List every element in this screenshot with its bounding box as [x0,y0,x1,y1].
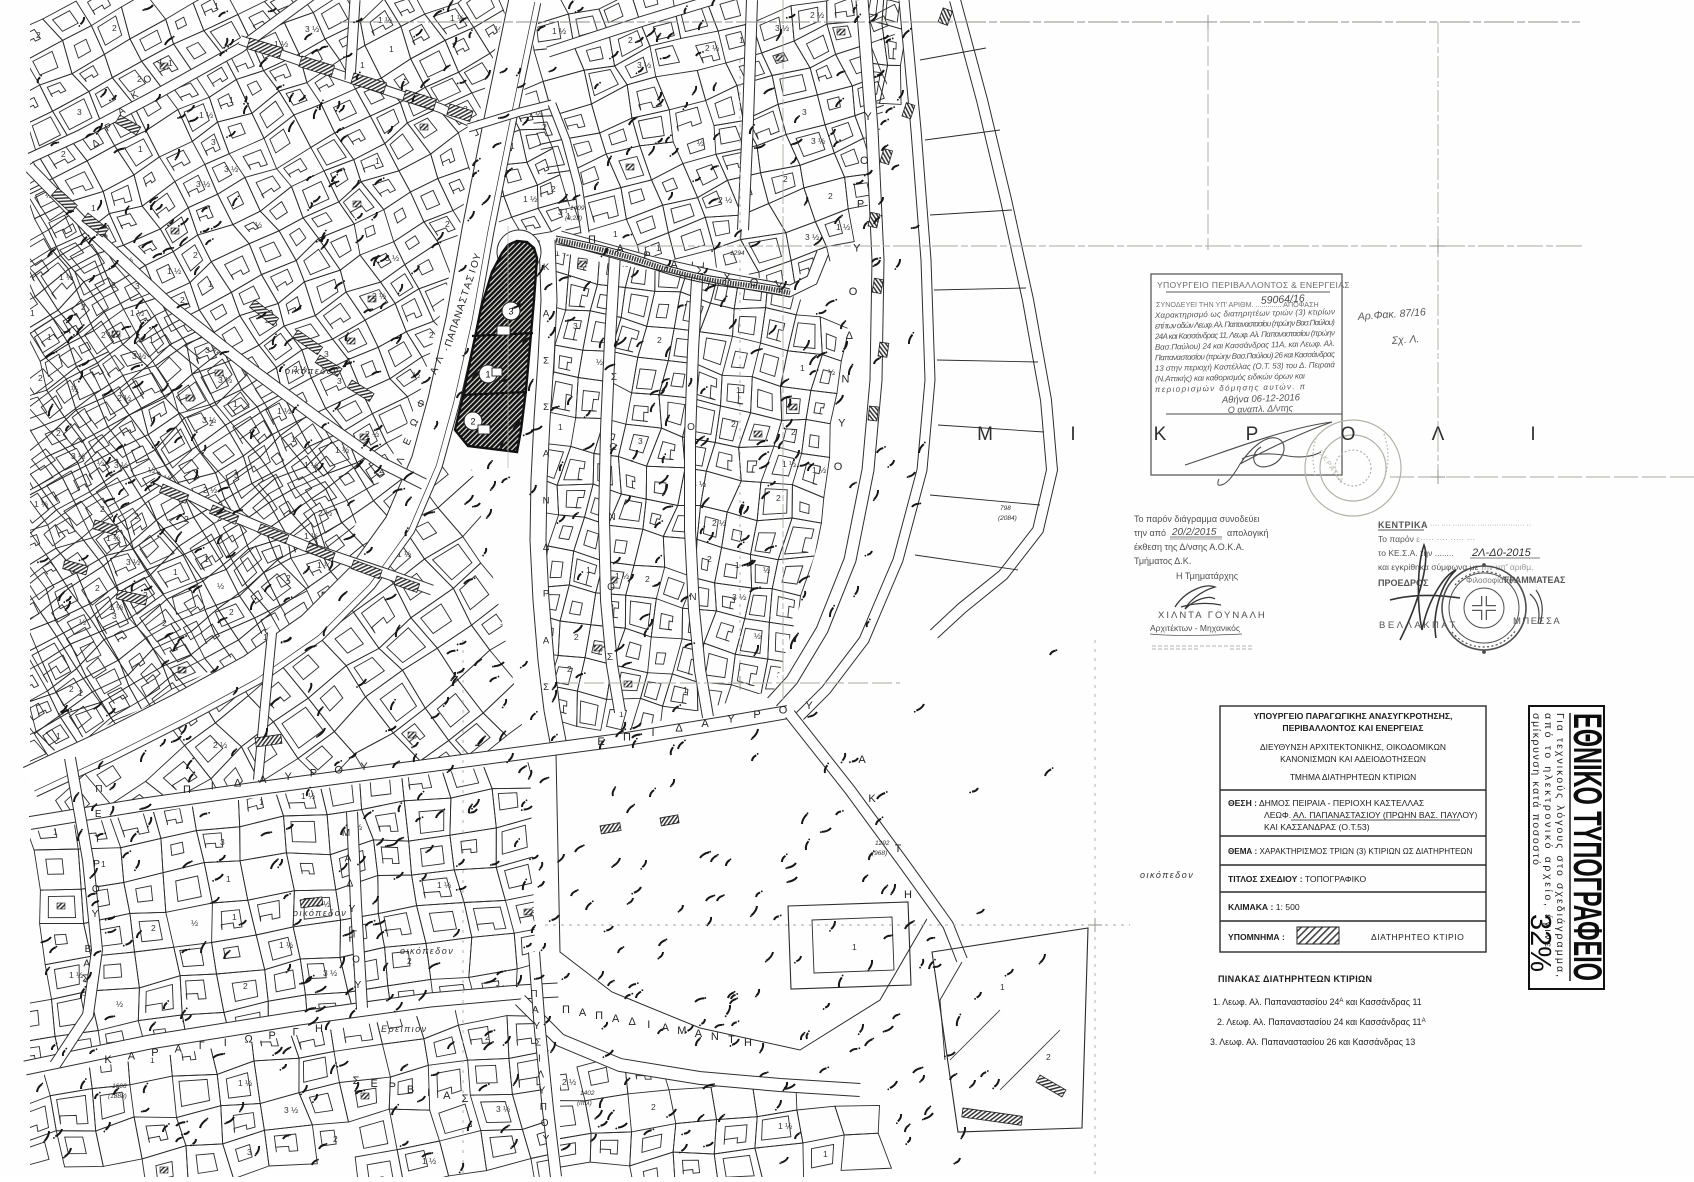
svg-text:Α: Α [532,1005,539,1016]
svg-text:1: 1 [229,95,234,105]
svg-text:1: 1 [232,912,237,922]
svg-text:3: 3 [337,376,342,386]
svg-text:1 ½: 1 ½ [130,308,144,318]
svg-text:ΧΙΛΝΤΑ ΓΟΥΝΑΛΗ: ΧΙΛΝΤΑ ΓΟΥΝΑΛΗ [1158,610,1267,621]
svg-text:Α: Α [579,1007,587,1019]
svg-text:Ρ: Ρ [643,250,650,262]
svg-text:3: 3 [112,611,117,621]
svg-text:Μ: Μ [977,424,993,445]
svg-text:(1888): (1888) [108,1093,127,1100]
svg-text:Π: Π [530,989,537,1000]
svg-text:2: 2 [651,1102,656,1112]
svg-text:½: ½ [255,220,262,230]
svg-text:Υ: Υ [355,980,362,991]
svg-text:½: ½ [754,631,761,641]
svg-text:Ο: Ο [92,884,100,895]
svg-text:έκθεση της Δ/νσης Α.Ο.Κ.: έκθεση της Δ/νσης Α.Ο.Κ.Α. [1134,542,1244,552]
svg-text:1: 1 [173,567,178,577]
svg-text:Τ: Τ [728,1034,735,1046]
svg-text:Υ: Υ [349,904,356,915]
svg-text:Ο: Ο [834,461,843,473]
svg-text:1: 1 [852,942,857,952]
svg-text:Η Τμηματάρχης: Η Τμηματάρχης [1176,571,1239,581]
svg-text:Σ: Σ [607,652,613,663]
svg-text:Υ: Υ [360,761,368,773]
svg-text:2: 2 [95,583,100,593]
svg-text:ΔΙΕΥΘΥΝΣΗ ΑΡΧΙΤΕΚΤΟΝΙΚΗΣ, ΟΙΚΟ: ΔΙΕΥΘΥΝΣΗ ΑΡΧΙΤΕΚΤΟΝΙΚΗΣ, ΟΙΚΟΔΟΜΙΚΩΝ [1260,742,1446,752]
svg-text:(2084): (2084) [998,515,1017,522]
svg-text:2: 2 [731,419,736,429]
svg-text:1 ½: 1 ½ [34,499,48,509]
svg-text:Ι: Ι [538,1053,541,1064]
svg-text:Π: Π [562,1004,570,1016]
svg-text:Ν: Ν [543,495,550,506]
svg-text:Α: Α [858,754,866,766]
svg-text:2: 2 [1046,1052,1051,1062]
svg-text:1: 1 [823,1149,828,1159]
svg-text:Δ: Δ [234,777,242,789]
svg-text:2: 2 [209,418,214,428]
svg-text:1: 1 [739,35,744,45]
svg-text:½: ½ [217,581,224,591]
svg-text:Τ: Τ [351,929,357,940]
svg-text:Ο: Ο [1341,424,1356,445]
svg-text:Σχ. Λ.: Σχ. Λ. [1390,333,1419,347]
svg-text:ΚΛΙΜΑΚΑ : 1: 500: ΚΛΙΜΑΚΑ : 1: 500 [1228,902,1300,912]
svg-text:Α: Α [701,718,709,730]
svg-text:ΠΕΡΙΒΑΛΛΟΝΤΟΣ ΚΑΙ ΕΝΕΡΓΕΙΑΣ: ΠΕΡΙΒΑΛΛΟΝΤΟΣ ΚΑΙ ΕΝΕΡΓΕΙΑΣ [1282,723,1423,733]
svg-text:2: 2 [111,280,116,290]
svg-text:1 ½: 1 ½ [437,880,451,890]
svg-text:Α: Α [616,243,624,255]
svg-text:Αρχιτέκτων - Μηχανικός: Αρχιτέκτων - Μηχανικός [1150,623,1240,633]
svg-text:½: ½ [697,138,704,148]
svg-text:Ο: Ο [541,1118,549,1129]
svg-text:1 ½: 1 ½ [523,194,537,204]
svg-text:3 ½: 3 ½ [805,232,819,242]
svg-text:οικόπεδον: οικόπεδον [1140,870,1194,880]
svg-text:ΜΠΕΣΣΑ: ΜΠΕΣΣΑ [1513,616,1561,627]
svg-text:3 ½: 3 ½ [132,351,146,361]
svg-text:οικόπεδον: οικόπεδον [400,946,454,956]
svg-text:Ο: Ο [334,764,343,776]
svg-text:3: 3 [211,137,216,147]
svg-text:3 ½: 3 ½ [126,557,140,567]
svg-text:Α: Α [670,259,678,271]
svg-text:Λ: Λ [537,1070,544,1081]
svg-text:Σ: Σ [353,1075,360,1087]
svg-text:3 ½: 3 ½ [775,23,789,33]
svg-text:Γ: Γ [199,1040,205,1052]
svg-text:Κ: Κ [1154,424,1167,445]
svg-text:Ι: Ι [427,1087,430,1099]
svg-text:1409: 1409 [570,205,585,212]
svg-text:Ο: Ο [860,155,869,167]
svg-text:Το παρόν ε····· ···· ·····: Το παρόν ε····· ···· ····· ··· [1378,534,1475,544]
svg-text:3 ½: 3 ½ [732,592,746,602]
svg-text:Ο: Ο [849,286,858,298]
svg-text:1: 1 [485,370,490,380]
svg-text:Ο: Ο [687,422,695,433]
svg-text:1: 1 [53,827,58,837]
svg-text:2: 2 [574,632,579,642]
svg-text:1 ½: 1 ½ [812,465,826,475]
svg-text:Ρ: Ρ [753,709,760,721]
svg-text:1 ½: 1 ½ [836,222,850,232]
svg-text:½: ½ [79,617,86,627]
svg-text:1294: 1294 [730,250,745,257]
svg-text:2 ½: 2 ½ [372,291,386,301]
svg-text:Ι: Ι [651,727,654,739]
svg-text:2: 2 [567,664,572,674]
svg-text:Δ: Δ [629,1016,637,1028]
svg-text:Υ: Υ [543,1134,550,1145]
svg-text:Α: Α [543,449,550,460]
svg-text:1: 1 [558,422,563,432]
svg-text:2 ½: 2 ½ [712,518,726,528]
svg-text:1: 1 [204,554,209,564]
svg-text:Τμήματος Δ.Κ.: Τμήματος Δ.Κ. [1134,556,1191,566]
svg-text:Ω: Ω [609,442,617,453]
svg-text:ΥΠΟΜΝΗΜΑ :: ΥΠΟΜΝΗΜΑ : [1228,932,1285,942]
svg-text:Γ: Γ [293,1026,299,1038]
svg-text:Υ: Υ [92,909,99,920]
svg-text:ΔΙΑΤΗΡΗΤΕΟ ΚΤΙΡΙΟ: ΔΙΑΤΗΡΗΤΕΟ ΚΤΙΡΙΟ [1371,932,1464,942]
svg-text:1: 1 [226,874,231,884]
svg-text:3 ½: 3 ½ [637,60,651,70]
svg-text:2: 2 [791,427,796,437]
svg-text:Π: Π [595,1010,603,1022]
svg-text:Σ: Σ [543,682,549,693]
svg-text:.: . [83,988,86,999]
svg-text:(ά;28): (ά;28) [565,214,582,222]
svg-text:ΚΑΙ ΚΑΣΣΑΝΔΡΑΣ (Ο.Τ.53): ΚΑΙ ΚΑΣΣΑΝΔΡΑΣ (Ο.Τ.53) [1264,822,1370,832]
svg-text:32%: 32% [1524,914,1556,972]
svg-text:Λ: Λ [1432,424,1445,445]
svg-text:2: 2 [286,573,291,583]
svg-text:Α: Α [345,853,352,864]
svg-text:Α: Α [259,774,267,786]
svg-text:1 ½: 1 ½ [422,1156,436,1166]
svg-text:½: ½ [828,367,835,377]
svg-text:1 ½: 1 ½ [59,272,73,282]
svg-text:Το παρόν διάγραμμα συνοδεύει: Το παρόν διάγραμμα συνοδεύει [1134,514,1259,524]
svg-text:Υ: Υ [838,417,846,429]
svg-text:1: 1 [613,229,618,239]
svg-text:Υ: Υ [864,111,872,123]
svg-text:1: 1 [91,203,96,213]
svg-text:Ρ: Ρ [857,199,864,211]
svg-text:½: ½ [191,918,198,928]
svg-text:(968): (968) [872,850,887,857]
svg-text:Π: Π [540,1102,547,1113]
svg-text:απολογική: απολογική [1227,528,1269,538]
svg-text:σμίκρυνση κατά ποσοστό: σμίκρυνση κατά ποσοστό [1530,713,1542,865]
svg-text:1 ½: 1 ½ [199,110,213,120]
svg-text:Υ: Υ [853,242,861,254]
svg-text:3 ½: 3 ½ [323,968,337,978]
svg-text:Κ: Κ [104,1054,112,1066]
svg-text:1 ½: 1 ½ [277,406,291,416]
svg-text:2: 2 [707,554,712,564]
svg-text:1 ½: 1 ½ [615,571,629,581]
svg-text:Δ: Δ [543,542,550,553]
svg-text:ΓΡΑΜΜΑΤΕΑΣ: ΓΡΑΜΜΑΤΕΑΣ [1504,575,1566,585]
svg-text:ΥΠΟΥΡΓΕΙΟ ΠΕΡΙΒΑΛΛΟΝΤΟΣ & ΕΝΕΡ: ΥΠΟΥΡΓΕΙΟ ΠΕΡΙΒΑΛΛΟΝΤΟΣ & ΕΝΕΡΓΕΙΑΣ [1157,280,1350,290]
svg-text:Ν: Ν [689,592,696,603]
svg-text:Ρ: Ρ [389,1081,396,1093]
svg-text:Ο: Ο [750,277,759,289]
svg-text:2: 2 [184,514,189,524]
svg-text:Ο: Ο [352,955,360,966]
svg-text:Σ: Σ [462,1093,469,1105]
svg-text:3 ½: 3 ½ [284,1105,298,1115]
svg-text:2 ½: 2 ½ [718,195,732,205]
svg-text:ΘΕΣΗ : ΔΗΜΟΣ ΠΕΙΡΑΙΑ - ΠΕΡ: ΘΕΣΗ : ΔΗΜΟΣ ΠΕΙΡΑΙΑ - ΠΕΡΙΟΧΗ ΚΑΣΤΕΛΛΑΣ [1228,798,1424,808]
svg-text:3 ½: 3 ½ [811,136,825,146]
svg-text:Ο: Ο [779,705,788,717]
svg-text:2: 2 [551,184,556,194]
svg-text:Δ: Δ [846,330,854,342]
svg-text:Σ: Σ [611,372,617,383]
svg-text:Υ: Υ [727,714,735,726]
svg-text:Ρ: Ρ [151,1047,158,1059]
svg-text:3: 3 [77,107,82,117]
svg-text:½: ½ [97,458,104,468]
svg-text:2: 2 [783,174,788,184]
svg-text:3 ½: 3 ½ [114,460,128,470]
svg-text:2: 2 [243,981,248,991]
svg-text:Ν: Ν [711,1031,719,1043]
svg-text:Ρ: Ρ [310,768,317,780]
svg-text:2 ½: 2 ½ [365,429,379,439]
svg-text:1. Λεωφ. Αλ. Παπαναστασίου 24Α: 1. Λεωφ. Αλ. Παπαναστασίου 24Α και Κασσά… [1213,997,1422,1007]
svg-text:Κ: Κ [543,262,550,273]
svg-text:Β: Β [407,1084,414,1096]
svg-text:ΤΜΗΜΑ ΔΙΑΤΗΡΗΤΕΩΝ ΚΤΙΡΙΩΝ: ΤΜΗΜΑ ΔΙΑΤΗΡΗΤΕΩΝ ΚΤΙΡΙΩΝ [1290,772,1416,782]
svg-text:2: 2 [657,335,662,345]
svg-text:ΘΕΜΑ : ΧΑΡΑΚΤΗΡΙΣΜΟΣ ΤΡΙΩΝ (3: ΘΕΜΑ : ΧΑΡΑΚΤΗΡΙΣΜΟΣ ΤΡΙΩΝ (3) ΚΤΙΡΙΩΝ Ω… [1228,847,1472,856]
svg-text:2: 2 [193,250,198,260]
svg-text:ΤΙΤΛΟΣ ΣΧΕΔΙΟΥ : ΤΟΠΟΓΡΑΦΙΚΟ: ΤΙΤΛΟΣ ΣΧΕΔΙΟΥ : ΤΟΠΟΓΡΑΦΙΚΟ [1228,874,1367,884]
svg-text:1: 1 [168,58,173,68]
svg-text:1: 1 [1000,982,1005,992]
svg-text:3. Λεωφ. Αλ. Παπαναστασίου 26: 3. Λεωφ. Αλ. Παπαναστασίου 26 και Κασσάν… [1210,1037,1415,1047]
svg-text:Ε: Ε [95,809,102,820]
svg-text:Τ: Τ [94,834,100,845]
svg-text:Σ: Σ [82,973,88,984]
svg-text:Μ: Μ [677,1025,686,1037]
svg-text:Ω: Ω [245,1033,253,1045]
svg-text:2: 2 [333,1134,338,1144]
svg-text:2: 2 [151,923,156,933]
svg-text:Α: Α [695,1028,703,1040]
svg-text:2: 2 [229,607,234,617]
svg-text:2: 2 [429,330,434,340]
svg-text:1 ½: 1 ½ [378,15,392,25]
svg-text:1: 1 [208,279,213,289]
svg-text:2: 2 [134,511,139,521]
svg-text:3: 3 [802,107,807,117]
svg-text:1 ½: 1 ½ [552,26,566,36]
svg-text:ΛΕΩΦ. ΑΛ. ΠΑΠΑΝΑΣΤΑΣΙΟΥ (ΠΡΩΗΝ: ΛΕΩΦ. ΑΛ. ΠΑΠΑΝΑΣΤΑΣΙΟΥ (ΠΡΩΗΝ ΒΑΣ. ΠΑΥΛ… [1264,810,1478,820]
svg-text:···· ···· ·········· ········: ···· ···· ·········· ···················… [1430,522,1531,529]
svg-text:2: 2 [56,428,61,438]
svg-text:Ρ: Ρ [93,859,100,870]
svg-text:3 ½: 3 ½ [224,164,238,174]
svg-text:Σ: Σ [697,265,704,277]
svg-text:2: 2 [407,956,412,966]
svg-text:1: 1 [149,335,154,345]
svg-text:Α: Α [612,1013,620,1025]
svg-text:Υ: Υ [284,771,292,783]
svg-text:2: 2 [112,23,117,33]
svg-text:Α: Α [662,1022,670,1034]
svg-text:Σ: Σ [543,402,549,413]
svg-text:2: 2 [828,191,833,201]
svg-text:59064/16: 59064/16 [1261,293,1306,307]
svg-text:1 ½: 1 ½ [69,970,83,980]
svg-text:3 ½: 3 ½ [196,179,210,189]
svg-text:ΚΕΝΤΡΙΚΑ: ΚΕΝΤΡΙΚΑ [1378,520,1428,530]
svg-text:2 ½: 2 ½ [318,508,332,518]
svg-text:Ο: Ο [607,582,615,593]
svg-text:ΚΑΝΟΝΙΣΜΩΝ ΚΑΙ ΑΔΕΙΟΔΟΤΗΣΕΩΝ: ΚΑΝΟΝΙΣΜΩΝ ΚΑΙ ΑΔΕΙΟΔΟΤΗΣΕΩΝ [1280,754,1426,764]
svg-text:Ν: Ν [842,374,850,386]
svg-text:Δ: Δ [675,723,683,735]
svg-text:Ι: Ι [1070,424,1075,445]
svg-text:2: 2 [162,618,167,628]
svg-text:Ε: Ε [597,736,604,748]
svg-text:1: 1 [586,565,591,575]
svg-text:Α: Α [543,309,550,320]
svg-text:Ι: Ι [211,781,214,793]
svg-text:2 ½: 2 ½ [101,330,115,340]
svg-text:Π: Π [95,784,102,795]
svg-text:Ερείπιον: Ερείπιον [381,1024,428,1034]
svg-text:Μ: Μ [342,828,350,839]
svg-text:1: 1 [800,363,805,373]
svg-text:1: 1 [389,44,394,54]
svg-text:Π: Π [183,784,191,796]
svg-text:Α: Α [175,1044,183,1056]
svg-text:2: 2 [445,219,450,229]
svg-text:οικόπεδον: οικόπεδον [293,908,347,918]
svg-text:3 ½: 3 ½ [305,24,319,34]
svg-text:2: 2 [137,74,142,84]
svg-text:3: 3 [247,1147,252,1157]
svg-text:2: 2 [38,373,43,383]
svg-text:2: 2 [61,149,66,159]
svg-text:1 ½: 1 ½ [279,940,293,950]
svg-text:Η: Η [315,1023,323,1035]
svg-text:το ΚΕ.Σ.Α. την ........: το ΚΕ.Σ.Α. την ........ [1378,548,1454,558]
svg-text:Σ: Σ [543,355,549,366]
svg-text:1: 1 [291,434,296,444]
svg-text:1: 1 [735,560,740,570]
svg-text:Α: Α [83,959,90,970]
svg-text:1606: 1606 [112,1083,127,1090]
svg-text:½: ½ [148,465,155,475]
svg-text:2: 2 [628,35,633,45]
svg-text:Υ: Υ [533,1021,540,1032]
svg-text:2 ½: 2 ½ [705,43,719,53]
svg-text:20/2/2015: 20/2/2015 [1171,527,1217,538]
svg-text:Σ: Σ [535,1037,541,1048]
svg-text:1: 1 [259,797,264,807]
svg-text:ΥΠΟΥΡΓΕΙΟ ΠΑΡΑΓΩΓΙΚΗΣ ΑΝΑΣΥΓΚΡ: ΥΠΟΥΡΓΕΙΟ ΠΑΡΑΓΩΓΙΚΗΣ ΑΝΑΣΥΓΚΡΟΤΗΣΗΣ, [1254,711,1453,721]
svg-text:Η: Η [744,1037,752,1049]
svg-text:2: 2 [470,417,475,427]
svg-text:1: 1 [214,1,219,11]
svg-text:1: 1 [56,731,61,741]
svg-text:Ι: Ι [224,1037,227,1049]
svg-text:2: 2 [645,574,650,584]
svg-text:Δ: Δ [347,879,354,890]
svg-text:2 ½: 2 ½ [810,10,824,20]
svg-text:Ρ: Ρ [1246,424,1259,445]
svg-text:οικόπεδον: οικόπεδον [285,366,339,376]
svg-text:1: 1 [656,243,661,253]
svg-text:2Λ-Δ0-2015: 2Λ-Δ0-2015 [1471,547,1532,559]
svg-text:2 ½: 2 ½ [213,740,227,750]
svg-text:Υ: Υ [539,1086,546,1097]
svg-text:1292: 1292 [875,840,890,847]
svg-text:1: 1 [101,859,106,869]
svg-text:Η: Η [904,889,912,901]
svg-text:3 ½: 3 ½ [496,1104,510,1114]
svg-text:Υ: Υ [805,700,813,712]
svg-text:Ι: Ι [647,1019,650,1031]
svg-text:3: 3 [638,436,643,446]
svg-text:1402: 1402 [580,1090,595,1097]
svg-text:3: 3 [220,837,225,847]
svg-text:1 ½: 1 ½ [167,266,181,276]
svg-text:½: ½ [116,999,123,1009]
svg-text:3: 3 [573,321,578,331]
svg-text:Α: Α [128,1051,136,1063]
svg-text:Π: Π [623,732,631,744]
svg-text:(ίπϊλ): (ίπϊλ) [577,1099,592,1107]
svg-text:2: 2 [36,30,41,40]
svg-text:2: 2 [776,493,781,503]
svg-text:Χ: Χ [723,272,731,284]
svg-text:Κ: Κ [868,793,876,805]
svg-text:1: 1 [683,685,688,695]
svg-text:2: 2 [81,302,86,312]
svg-text:Ι: Ι [1530,424,1535,445]
svg-text:Ρ: Ρ [543,589,549,600]
svg-text:ΕΘΝΙΚΟ ΤΥΠΟΓΡΑΦΕΙΟ: ΕΘΝΙΚΟ ΤΥΠΟΓΡΑΦΕΙΟ [1565,713,1609,981]
svg-text:2: 2 [69,684,74,694]
svg-text:1: 1 [360,60,365,70]
svg-text:Υ: Υ [775,281,783,293]
svg-text:1: 1 [30,308,35,318]
svg-text:ΠΙΝΑΚΑΣ ΔΙΑΤΗΡΗΤΕΩΝ ΚΤΙΡΙΩΝ: ΠΙΝΑΚΑΣ ΔΙΑΤΗΡΗΤΕΩΝ ΚΤΙΡΙΩΝ [1218,974,1372,984]
svg-text:½: ½ [596,357,603,367]
svg-text:2 ½: 2 ½ [562,1077,576,1087]
svg-text:1 ½: 1 ½ [778,1121,792,1131]
svg-text:Α: Α [443,1090,451,1102]
svg-text:Α: Α [543,635,550,646]
svg-text:½: ½ [763,565,770,575]
svg-text:1: 1 [375,156,380,166]
svg-text:Ν: Ν [608,512,615,523]
svg-text:Τ: Τ [895,843,902,855]
svg-text:την από: την από [1134,528,1166,538]
svg-text:798: 798 [1000,505,1011,512]
svg-text:1 ½: 1 ½ [238,1078,252,1088]
